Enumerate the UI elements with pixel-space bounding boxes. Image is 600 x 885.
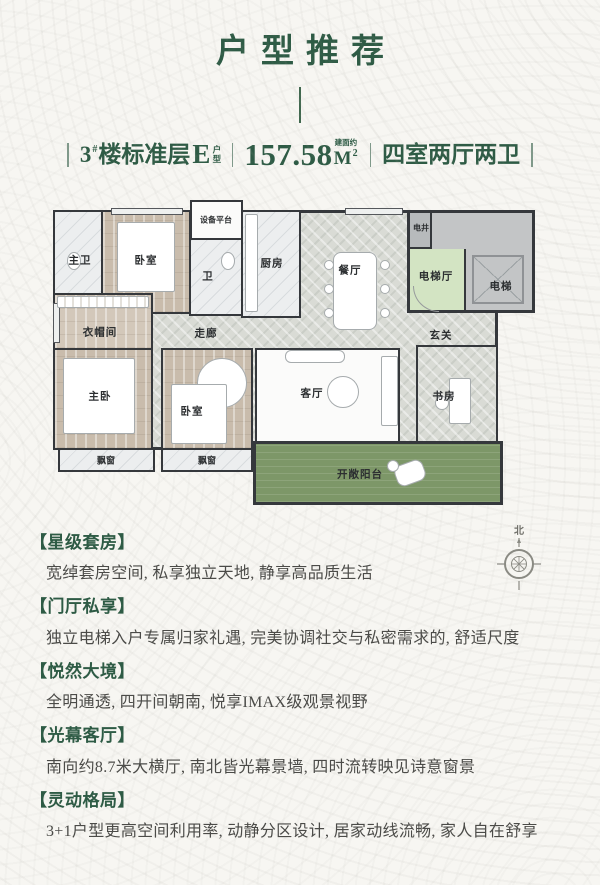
unit-type-small: 户型	[212, 145, 221, 164]
section-light-living: 【光幕客厅】 南向约8.7米大横厅, 南北皆光幕景墙, 四时流转映见诗意窗景	[0, 726, 600, 777]
section-heading: 【门厅私享】	[30, 597, 600, 617]
page: 户型推荐 3#楼标准层E户型 157.58建面约M2 四室两厅两卫	[0, 0, 600, 885]
spec-divider	[232, 143, 234, 167]
section-body: 宽绰套房空间, 私享独立天地, 静享高品质生活	[46, 564, 600, 584]
window-segment	[111, 208, 183, 215]
area-note: 建面约	[335, 139, 358, 147]
spec-line: 3#楼标准层E户型 157.58建面约M2 四室两厅两卫	[0, 139, 600, 170]
dining-chair	[324, 284, 334, 294]
section-heading: 【光幕客厅】	[30, 726, 600, 746]
section-flexible-layout: 【灵动格局】 3+1户型更高空间利用率, 动静分区设计, 居家动线流畅, 家人自…	[0, 791, 600, 842]
section-body: 独立电梯入户专属归家礼遇, 完美协调社交与私密需求的, 舒适尺度	[46, 629, 600, 649]
room-label-master-bath: 主卫	[69, 253, 92, 268]
unit-letter: E	[192, 141, 210, 168]
dining-chair	[380, 284, 390, 294]
balcony-stool	[387, 460, 399, 472]
dining-chair	[324, 308, 334, 318]
room-label-corridor: 走廊	[195, 326, 218, 341]
room-label-foyer: 玄关	[430, 328, 453, 343]
room-label-bedroom-top: 卧室	[135, 253, 158, 268]
room-label-cloakroom: 衣帽间	[83, 325, 118, 340]
spec-area: 157.58建面约M2	[244, 139, 358, 170]
dining-chair	[324, 260, 334, 270]
section-heading: 【灵动格局】	[30, 791, 600, 811]
room-label-dining: 餐厅	[339, 263, 362, 278]
room-label-bedroom-bottom: 卧室	[181, 404, 204, 419]
room-label-equipment-platform: 设备平台	[200, 215, 232, 226]
coffee-table	[327, 376, 359, 408]
section-body: 3+1户型更高空间利用率, 动静分区设计, 居家动线流畅, 家人自在舒享	[46, 822, 600, 842]
building-number: 3	[80, 143, 92, 166]
section-private-hall: 【门厅私享】 独立电梯入户专属归家礼遇, 完美协调社交与私密需求的, 舒适尺度	[0, 597, 600, 648]
sofa	[285, 350, 345, 363]
room-label-kitchen: 厨房	[261, 256, 284, 271]
floor-plan: 主卫 卧室 设备平台 卫 厨房 餐厅 电井 电梯厅 电梯 衣帽间 走廊 玄关 主…	[45, 200, 537, 510]
area-value: 157.58	[244, 139, 332, 170]
spec-divider	[531, 143, 533, 167]
area-unit: 建面约M2	[334, 142, 359, 168]
room-label-shaft: 电井	[413, 223, 429, 234]
spec-rooms: 四室两厅两卫	[382, 143, 520, 166]
spec-divider	[67, 143, 69, 167]
dining-chair	[380, 260, 390, 270]
wardrobe	[57, 296, 149, 308]
dining-chair	[380, 308, 390, 318]
spec-building: 3#楼标准层E户型	[80, 141, 221, 168]
section-grand-view: 【悦然大境】 全明通透, 四开间朝南, 悦享IMAX级观景视野	[0, 662, 600, 713]
room-label-elevator-hall: 电梯厅	[419, 269, 454, 284]
sofa	[381, 356, 398, 426]
room-label-balcony: 开敞阳台	[337, 467, 383, 482]
toilet	[221, 252, 235, 270]
section-body: 南向约8.7米大横厅, 南北皆光幕景墙, 四时流转映见诗意窗景	[46, 758, 600, 778]
room-bath-area	[189, 238, 243, 316]
room-label-elevator: 电梯	[490, 279, 513, 294]
floor-text: 楼标准层	[98, 143, 190, 166]
room-label-master-bedroom: 主卧	[89, 389, 112, 404]
building-sup: #	[92, 145, 97, 155]
room-label-bath: 卫	[202, 269, 214, 284]
spec-divider	[370, 143, 372, 167]
window-segment	[53, 303, 60, 343]
title-divider	[299, 87, 301, 123]
kitchen-counter	[245, 214, 258, 312]
window-segment	[345, 208, 403, 215]
room-label-living: 客厅	[301, 386, 324, 401]
page-title: 户型推荐	[0, 0, 600, 72]
section-heading: 【星级套房】	[30, 533, 600, 553]
room-label-baywindow-right: 飘窗	[198, 454, 216, 467]
section-star-suite: 【星级套房】 宽绰套房空间, 私享独立天地, 静享高品质生活	[0, 533, 600, 584]
selling-points: 【星级套房】 宽绰套房空间, 私享独立天地, 静享高品质生活 【门厅私享】 独立…	[0, 533, 600, 855]
section-heading: 【悦然大境】	[30, 662, 600, 682]
room-label-baywindow-left: 飘窗	[97, 454, 115, 467]
section-body: 全明通透, 四开间朝南, 悦享IMAX级观景视野	[46, 693, 600, 713]
room-label-study: 书房	[433, 389, 456, 404]
